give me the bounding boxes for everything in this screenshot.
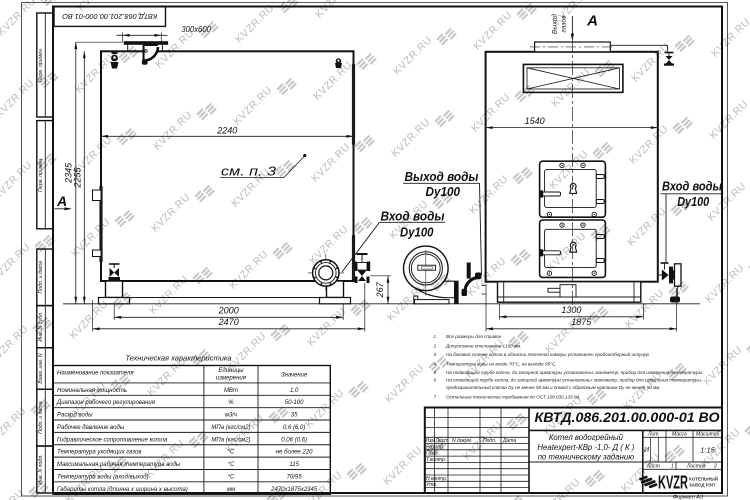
svg-text:Heatexpert-КВр -1,0- Д ( К ): Heatexpert-КВр -1,0- Д ( К )	[537, 443, 634, 452]
svg-text:50-100: 50-100	[285, 400, 304, 406]
svg-text:0,06 (0,6): 0,06 (0,6)	[281, 437, 307, 443]
svg-text:Температура воды на входе 70°: Температура воды на входе 70°С, на выход…	[446, 362, 557, 367]
svg-text:МВт: МВт	[224, 388, 238, 394]
svg-text:Изм: Изм	[426, 438, 436, 444]
svg-text:Все размеры для справок: Все размеры для справок	[446, 334, 502, 339]
svg-text:измерения: измерения	[216, 376, 247, 382]
svg-text:Котел водогрейный: Котел водогрейный	[549, 433, 624, 442]
svg-text:°С: °С	[228, 462, 235, 468]
svg-text:0,6 (6,0): 0,6 (6,0)	[283, 425, 305, 431]
svg-text:70/95: 70/95	[287, 475, 303, 481]
svg-text:°С: °С	[228, 475, 235, 481]
svg-text:2: 2	[433, 343, 437, 348]
svg-text:Диапазон рабочего регулировани: Диапазон рабочего регулирования	[56, 400, 156, 406]
svg-text:N докум.: N докум.	[452, 438, 472, 444]
svg-text:ЗАВОД РЭП: ЗАВОД РЭП	[689, 483, 715, 488]
svg-text:КВТД.068.201.00.000-01 ВО: КВТД.068.201.00.000-01 ВО	[62, 12, 157, 21]
svg-text:Наименование показателя: Наименование показателя	[57, 371, 134, 377]
svg-text:Значение: Значение	[281, 373, 308, 379]
svg-text:Взам. инв. N: Взам. инв. N	[38, 353, 44, 383]
svg-text:Температура воды (вход/выход): Температура воды (вход/выход)	[57, 475, 149, 481]
svg-text:KVZR: KVZR	[658, 472, 688, 493]
svg-text:2: 2	[713, 464, 717, 470]
svg-text:мм: мм	[227, 487, 235, 493]
svg-text:Выход воды: Выход воды	[405, 170, 479, 184]
svg-text:3: 3	[434, 352, 437, 357]
svg-text:35: 35	[291, 413, 298, 419]
svg-text:115: 115	[289, 462, 299, 468]
svg-text:2240: 2240	[216, 125, 237, 135]
svg-text:1: 1	[434, 334, 437, 339]
svg-text:1540: 1540	[525, 116, 545, 126]
svg-text:Перв. примен.: Перв. примен.	[38, 48, 44, 82]
svg-text:Допустимое отклонение ±100 мм: Допустимое отклонение ±100 мм.	[445, 343, 522, 348]
svg-text:Т.контр.: Т.контр.	[426, 457, 446, 463]
svg-text:Масштаб: Масштаб	[696, 432, 720, 438]
svg-text:Инв. N подл.: Инв. N подл.	[38, 454, 44, 484]
svg-text:2000: 2000	[218, 306, 239, 316]
svg-text:КОТЕЛЬНЫЙ: КОТЕЛЬНЫЙ	[689, 477, 718, 482]
svg-text:Н.контр.: Н.контр.	[426, 476, 447, 482]
svg-text:Дата: Дата	[502, 438, 516, 444]
svg-text:1,0: 1,0	[290, 388, 299, 394]
svg-text:Остальные технические требован: Остальные технические требования по ОСТ …	[446, 395, 581, 400]
svg-text:А: А	[586, 13, 598, 30]
svg-text:по техническому заданию: по техническому заданию	[538, 453, 634, 462]
svg-text:Утв.: Утв.	[426, 482, 437, 488]
svg-text:не более 220: не более 220	[276, 450, 313, 456]
svg-text:267: 267	[375, 281, 385, 298]
svg-text:1: 1	[671, 464, 674, 470]
svg-text:%: %	[228, 400, 234, 406]
svg-text:Подп. и дата: Подп. и дата	[38, 261, 44, 294]
svg-text:Формат А3: Формат А3	[673, 495, 704, 500]
svg-text:м3/ч: м3/ч	[225, 413, 237, 419]
svg-text:Температура уходящих газов: Температура уходящих газов	[57, 450, 142, 456]
svg-text:А: А	[56, 193, 67, 209]
svg-text:Вход воды: Вход воды	[662, 180, 722, 194]
svg-text:7: 7	[434, 395, 437, 400]
svg-text:предохранительный клапан Dу не: предохранительный клапан Dу не менее 50 …	[446, 384, 661, 390]
svg-text:Лит.: Лит.	[647, 432, 660, 438]
svg-text:Масса: Масса	[672, 432, 687, 438]
svg-text:6: 6	[434, 378, 437, 383]
svg-text:На подводящей трубе котла, до: На подводящей трубе котла, до запорной а…	[446, 369, 703, 375]
svg-text:Гидравлическое сопротивление к: Гидравлическое сопротивление котла	[57, 437, 168, 443]
svg-text:2470: 2470	[218, 317, 239, 327]
svg-text:Рабочее давление воды: Рабочее давление воды	[57, 425, 125, 431]
